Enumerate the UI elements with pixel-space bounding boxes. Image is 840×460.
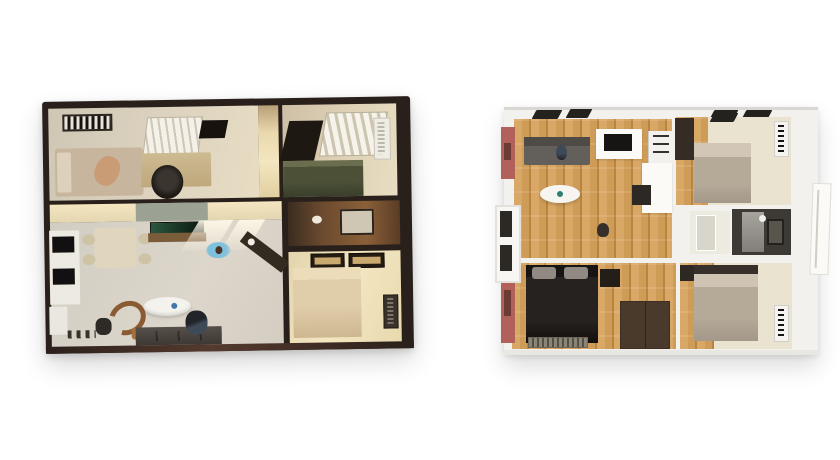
beige-bed	[293, 267, 362, 338]
window-icon	[710, 113, 739, 122]
window-icon	[566, 109, 593, 118]
person-on-bed	[90, 152, 124, 189]
left-bathroom	[288, 200, 401, 246]
dining-chair	[138, 253, 151, 264]
pillow	[532, 267, 556, 279]
right-hallway-laundry	[690, 211, 730, 254]
kitchen-counter	[596, 129, 642, 159]
left-room-bedroom3	[288, 250, 401, 344]
office-chair	[151, 165, 184, 199]
console-table	[240, 231, 289, 273]
canvas	[0, 0, 840, 460]
right-floorplan	[504, 107, 818, 355]
shoes	[68, 330, 96, 338]
mirror-icon	[767, 219, 784, 245]
kitchen-lower-cabinet	[49, 307, 67, 335]
wall-ac-icon	[774, 305, 789, 342]
left-room-office	[48, 106, 259, 201]
left-living-area	[50, 219, 284, 348]
oval-lounger	[143, 297, 191, 317]
left-room-bedroom2	[282, 103, 397, 197]
taupe-bed	[694, 143, 751, 203]
kitchen-cabinets	[49, 230, 80, 304]
shower-glass	[696, 215, 716, 251]
pillow	[564, 267, 588, 279]
green-bed	[283, 160, 364, 197]
oval-coffee-table	[540, 185, 580, 203]
person-crouching	[597, 223, 609, 237]
terracotta-panel	[501, 127, 515, 179]
dark-bed	[526, 265, 598, 343]
grill-island	[632, 185, 651, 205]
wall-tv-panel	[199, 120, 229, 138]
taupe-bed	[694, 265, 758, 341]
wall-ac-icon	[774, 121, 789, 157]
right-master-bedroom	[676, 117, 791, 205]
fold-out-door	[809, 183, 831, 276]
sink-icon	[312, 216, 322, 224]
mirror-icon	[340, 209, 374, 236]
right-bathroom	[732, 209, 791, 255]
left-floorplan	[42, 96, 414, 354]
tv-feature-wall	[136, 202, 208, 221]
person-on-sofa	[556, 145, 567, 160]
pillow	[57, 152, 72, 192]
fridge	[648, 131, 674, 163]
fold-out-window	[495, 205, 521, 283]
ac-vent-icon	[62, 114, 112, 132]
wall-ac-icon	[383, 294, 399, 328]
nightstand	[600, 269, 620, 287]
side-table	[680, 265, 695, 281]
dark-wardrobe	[280, 120, 323, 161]
bed	[55, 147, 144, 196]
child-with-toy	[206, 242, 230, 258]
dark-sofa	[136, 326, 222, 345]
floor-vent-icon	[528, 337, 588, 348]
right-bedroom-dark	[512, 263, 676, 349]
window-icon	[532, 110, 563, 119]
brown-wardrobe	[620, 301, 670, 349]
cooktop-icon	[604, 134, 632, 151]
base-wall	[504, 350, 818, 355]
left-entry-hall	[258, 105, 279, 197]
lamp-icon	[246, 237, 256, 247]
picture-frame	[348, 253, 384, 269]
right-bedroom-taupe	[680, 263, 792, 349]
wall-clock-icon	[759, 215, 766, 222]
wall-ac-icon	[373, 117, 391, 159]
dark-wardrobe	[675, 118, 694, 160]
dining-table	[94, 227, 137, 268]
person-sitting	[95, 318, 111, 335]
person-on-floor	[185, 310, 207, 334]
